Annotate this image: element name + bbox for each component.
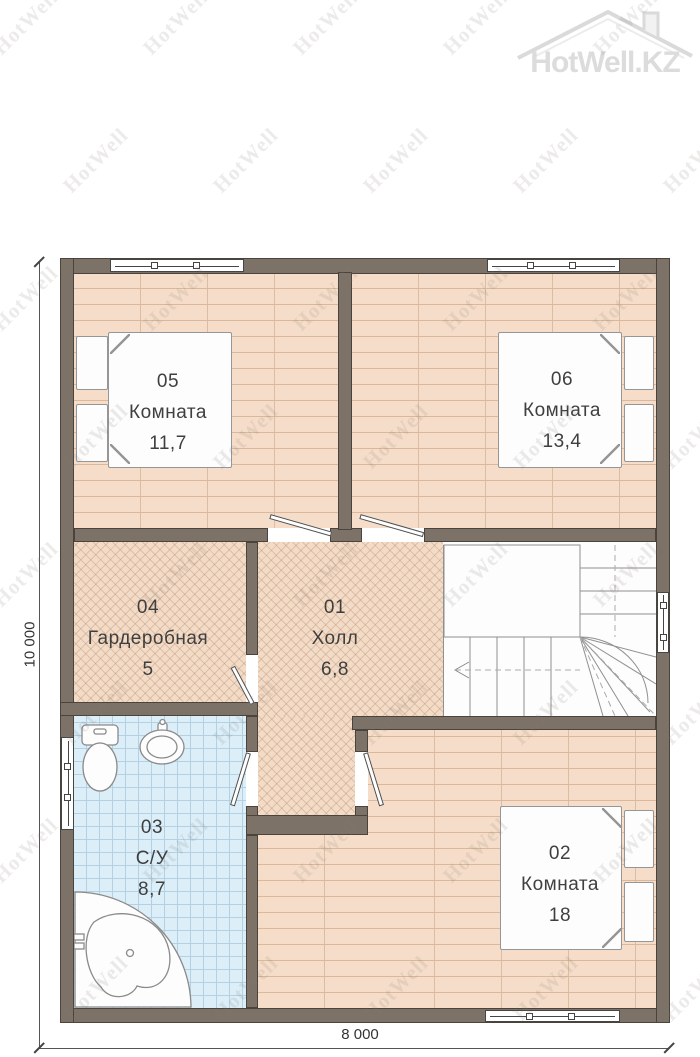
window-mullion [64, 794, 71, 801]
watermark-text: HotWell [438, 0, 513, 60]
window-mullion [151, 262, 158, 269]
wall-segment [246, 716, 258, 752]
window-mullion [526, 1013, 533, 1020]
room-name: Комната [472, 395, 652, 426]
wall-segment [74, 528, 268, 542]
window-room-02 [485, 1010, 620, 1022]
watermark-text: HotWell [138, 0, 213, 60]
hall-01-corridor-floor [258, 716, 355, 815]
dimension-line-horizontal [39, 1048, 669, 1049]
room-number: 04 [58, 592, 238, 623]
watermark-text: HotWell [0, 813, 64, 888]
dimension-height-label: 10 000 [22, 600, 39, 690]
blanket-fold [602, 808, 622, 828]
brand-name: HotWell.KZ [510, 46, 700, 80]
wall-segment [424, 528, 656, 542]
room-05-label: 05 Комната 11,7 [78, 366, 258, 459]
room-number: 05 [78, 366, 258, 397]
wall-stairs-room02 [352, 716, 656, 730]
wall-room05-06-divider [338, 272, 352, 530]
room-name: Комната [78, 397, 258, 428]
room-02-floor-left [258, 835, 368, 1008]
window-mullion [64, 763, 71, 770]
room-number: 02 [470, 838, 650, 869]
room-name: С/У [62, 843, 242, 874]
watermark-text: HotWell [0, 0, 64, 60]
window-mullion [527, 262, 534, 269]
toilet-icon [82, 725, 118, 791]
wall-segment [355, 730, 368, 752]
room-area: 11,7 [78, 428, 258, 459]
window-room-05 [110, 259, 244, 272]
room-name: Комната [470, 869, 650, 900]
watermark-text: HotWell [208, 123, 283, 198]
window-glass-line [490, 1016, 615, 1017]
room-area: 8,7 [62, 874, 242, 905]
room-area: 6,8 [245, 654, 425, 685]
sink-icon [140, 720, 184, 765]
wall-wardrobe-bathroom [60, 702, 258, 716]
window-glass-line [115, 266, 239, 267]
bathroom-03-label: 03 С/У 8,7 [62, 812, 242, 905]
wall-bathroom-room02 [246, 835, 258, 1008]
window-stairwell [657, 592, 669, 653]
watermark-text: HotWell [288, 0, 363, 60]
stairs [443, 542, 656, 716]
watermark-text: HotWell [0, 261, 64, 336]
watermark-text: HotWell [358, 123, 433, 198]
wall-corridor-bottom [246, 815, 368, 835]
hall-01-label: 01 Холл 6,8 [245, 592, 425, 685]
room-area: 5 [58, 654, 238, 685]
window-mullion [660, 602, 667, 609]
watermark-text: HotWell [658, 123, 700, 198]
window-mullion [660, 634, 667, 641]
room-area: 18 [470, 900, 650, 931]
window-mullion [569, 262, 576, 269]
blanket-fold [600, 334, 620, 354]
floor-plan-canvas: HotWell.KZ [0, 0, 700, 1057]
dimension-line-vertical [39, 262, 40, 1048]
room-name: Гардеробная [58, 623, 238, 654]
wardrobe-04-label: 04 Гардеробная 5 [58, 592, 238, 685]
wall-segment [330, 528, 362, 542]
room-02-label: 02 Комната 18 [470, 838, 650, 931]
window-mullion [568, 1013, 575, 1020]
bathtub-icon [74, 892, 191, 1007]
watermark-text: HotWell [508, 123, 583, 198]
dimension-width-label: 8 000 [300, 1026, 420, 1043]
room-name: Холл [245, 623, 425, 654]
window-mullion [193, 262, 200, 269]
blanket-fold [602, 928, 622, 948]
watermark-text: HotWell [58, 123, 133, 198]
blanket-fold [110, 334, 130, 354]
room-area: 13,4 [472, 426, 652, 457]
room-number: 06 [472, 364, 652, 395]
room-number: 03 [62, 812, 242, 843]
window-glass-line [492, 266, 615, 267]
room-number: 01 [245, 592, 425, 623]
window-room-06 [487, 259, 620, 272]
room-06-label: 06 Комната 13,4 [472, 364, 652, 457]
hotwell-logo: HotWell.KZ [510, 4, 700, 92]
